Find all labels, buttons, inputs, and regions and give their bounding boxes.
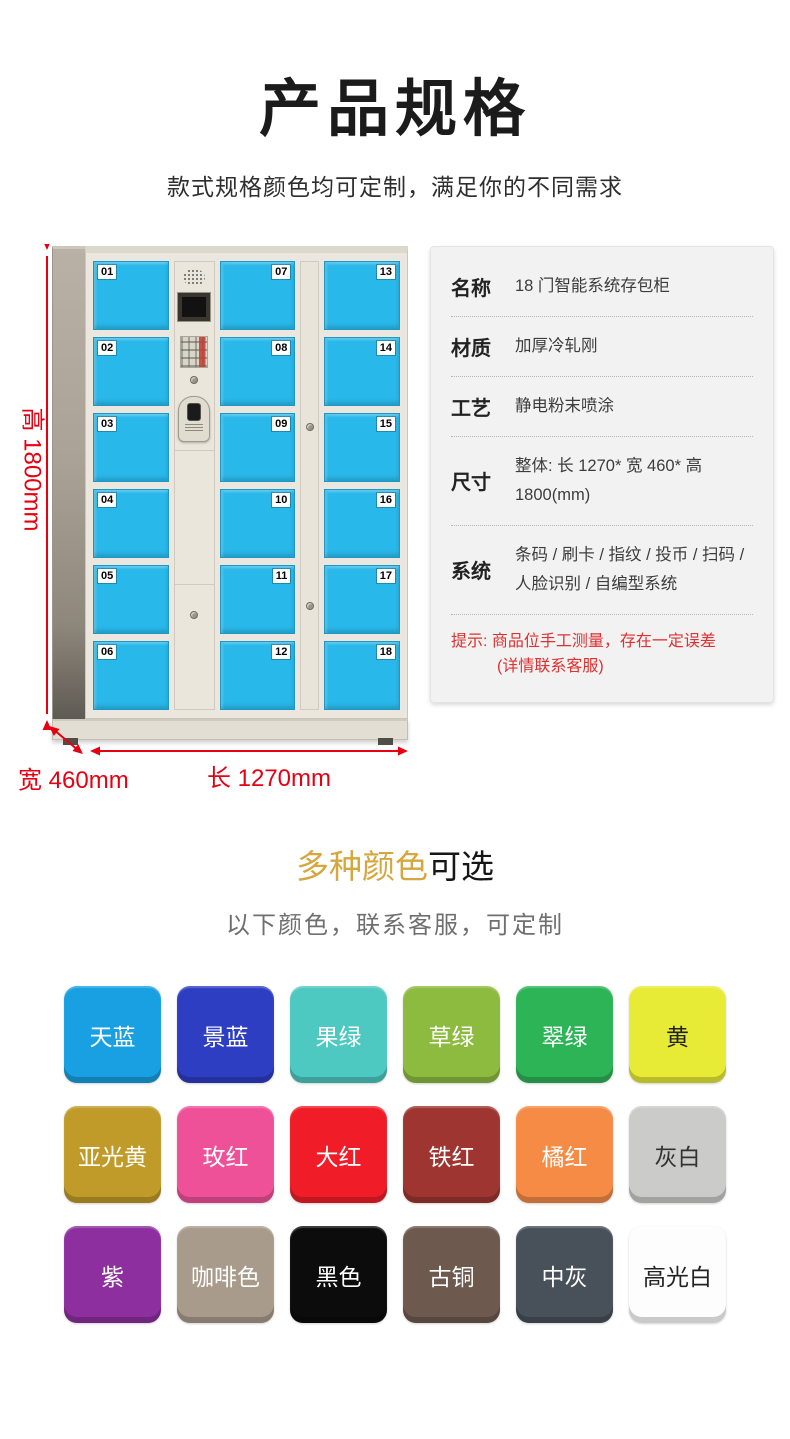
locker-door: 03 [93,413,169,482]
locker-door: 09 [220,413,296,482]
display-screen [178,293,210,321]
color-swatch-label: 果绿 [316,1018,362,1052]
dimension-length-label: 长 1270mm [184,758,354,793]
spec-note-line2: (详情联系客服) [451,654,753,680]
control-blank-panel [175,584,214,710]
locker-door: 15 [324,413,400,482]
spec-note-line1: 提示: 商品位手工测量，存在一定误差 [451,629,753,655]
spec-label: 尺寸 [451,466,503,495]
lock-icon [306,602,314,610]
locker-door: 01 [93,261,169,330]
color-swatch-black: 黑色 [290,1226,387,1323]
page-subtitle: 款式规格颜色均可定制，满足你的不同需求 [0,168,790,202]
door-number-label: 03 [98,417,116,431]
lock-icon [306,423,314,431]
spec-panel: 名称 18 门智能系统存包柜 材质 加厚冷轧刚 工艺 静电粉末喷涂 尺寸 整体:… [430,246,774,703]
color-swatch-grid: 天蓝 景蓝 果绿 草绿 翠绿 黄 亚光黄 玫红 大红 铁红 橘红 灰白 紫 咖啡… [64,986,726,1323]
scanner-text-lines [185,424,203,433]
locker-door: 04 [93,489,169,558]
cabinet-base [52,719,408,740]
control-blank-panel [175,450,214,576]
locker-door: 16 [324,489,400,558]
door-number-label: 11 [273,569,291,583]
colors-heading-highlight: 多种颜色 [296,848,428,885]
color-swatch-orange-red: 橘红 [516,1106,613,1203]
color-swatch-fruit-green: 果绿 [290,986,387,1083]
control-column [174,261,215,710]
color-swatch-label: 景蓝 [203,1018,249,1052]
color-swatch-label: 古铜 [429,1258,475,1292]
colors-subtitle: 以下颜色，联系客服，可定制 [0,905,790,940]
color-swatch-mid-gray: 中灰 [516,1226,613,1323]
locker-cabinet: 01 02 03 04 05 06 [52,246,408,740]
product-section: 01 02 03 04 05 06 [0,244,790,796]
locker-door: 18 [324,641,400,710]
color-swatch-coffee: 咖啡色 [177,1226,274,1323]
cabinet-side-panel [52,246,85,719]
color-swatch-sky-blue: 天蓝 [64,986,161,1083]
spec-note: 提示: 商品位手工测量，存在一定误差 (详情联系客服) [451,615,753,696]
color-swatch-label: 玫红 [203,1138,249,1172]
spec-label: 材质 [451,332,503,361]
color-swatch-label: 天蓝 [90,1018,136,1052]
color-swatch-purple: 紫 [64,1226,161,1323]
locker-door: 07 [220,261,296,330]
door-number-label: 16 [377,493,395,507]
divider-strip [300,261,319,710]
spec-value: 整体: 长 1270* 宽 460* 高 1800(mm) [515,452,753,510]
door-number-label: 15 [377,417,395,431]
color-swatch-label: 黑色 [316,1258,362,1292]
door-number-label: 04 [98,493,116,507]
spec-row-craft: 工艺 静电粉末喷涂 [451,377,753,437]
color-swatch-bronze: 古铜 [403,1226,500,1323]
dimension-height-label: 高 1800mm [18,405,53,535]
color-swatch-emerald: 翠绿 [516,986,613,1083]
product-spec-page: 产品规格 款式规格颜色均可定制，满足你的不同需求 01 02 03 04 05 … [0,58,790,1323]
color-swatch-gloss-white: 高光白 [629,1226,726,1323]
color-swatch-rose-red: 玫红 [177,1106,274,1203]
locker-figure: 01 02 03 04 05 06 [16,244,424,796]
door-number-label: 18 [377,645,395,659]
locker-door: 11 [220,565,296,634]
color-swatch-label: 中灰 [542,1258,588,1292]
door-number-label: 06 [98,645,116,659]
spec-label: 系统 [451,555,503,584]
door-number-label: 17 [377,569,395,583]
color-swatch-label: 亚光黄 [78,1138,147,1172]
color-swatch-label: 黄 [666,1018,689,1052]
spec-row-size: 尺寸 整体: 长 1270* 宽 460* 高 1800(mm) [451,437,753,526]
door-column-1: 01 02 03 04 05 06 [93,261,169,710]
cabinet-front: 01 02 03 04 05 06 [85,246,408,719]
door-number-label: 09 [272,417,290,431]
color-swatch-iron-red: 铁红 [403,1106,500,1203]
locker-door: 14 [324,337,400,406]
color-swatch-label: 紫 [101,1258,124,1292]
color-swatch-royal-blue: 景蓝 [177,986,274,1083]
speaker-grille-icon [183,269,205,286]
door-number-label: 07 [272,265,290,279]
locker-door: 10 [220,489,296,558]
locker-door: 05 [93,565,169,634]
color-swatch-label: 草绿 [429,1018,475,1052]
door-number-label: 08 [272,341,290,355]
spec-value: 18 门智能系统存包柜 [515,272,670,301]
locker-door: 08 [220,337,296,406]
spec-value: 静电粉末喷涂 [515,392,614,421]
color-swatch-label: 高光白 [643,1258,712,1292]
color-swatch-matte-yellow: 亚光黄 [64,1106,161,1203]
keypad-icon [180,336,208,368]
scanner-window [187,403,201,421]
fingerprint-scanner-icon [178,396,210,442]
door-number-label: 01 [98,265,116,279]
locker-door: 02 [93,337,169,406]
door-number-label: 12 [272,645,290,659]
spec-row-name: 名称 18 门智能系统存包柜 [451,257,753,317]
color-swatch-gray-white: 灰白 [629,1106,726,1203]
door-column-2: 07 08 09 10 11 12 [220,261,296,710]
door-number-label: 10 [272,493,290,507]
color-swatch-red: 大红 [290,1106,387,1203]
color-swatch-label: 铁红 [429,1138,475,1172]
spec-row-material: 材质 加厚冷轧刚 [451,317,753,377]
lock-icon [190,376,198,384]
door-number-label: 14 [377,341,395,355]
locker-door: 13 [324,261,400,330]
color-swatch-label: 大红 [316,1138,362,1172]
spec-value: 加厚冷轧刚 [515,332,598,361]
door-column-3: 13 14 15 16 17 18 [324,261,400,710]
color-swatch-label: 咖啡色 [191,1258,260,1292]
color-swatch-label: 翠绿 [542,1018,588,1052]
spec-label: 工艺 [451,392,503,421]
color-swatch-label: 灰白 [655,1138,701,1172]
door-number-label: 13 [377,265,395,279]
locker-door: 17 [324,565,400,634]
lock-icon [190,611,198,619]
colors-heading: 多种颜色可选 [0,840,790,888]
door-number-label: 05 [98,569,116,583]
locker-door: 12 [220,641,296,710]
spec-value: 条码 / 刷卡 / 指纹 / 投币 / 扫码 / 人脸识别 / 自编型系统 [515,541,753,599]
page-title: 产品规格 [0,58,790,148]
color-swatch-label: 橘红 [542,1138,588,1172]
color-swatch-yellow: 黄 [629,986,726,1083]
door-number-label: 02 [98,341,116,355]
dimension-width-label: 宽 460mm [18,760,129,795]
locker-door: 06 [93,641,169,710]
spec-label: 名称 [451,272,503,301]
colors-heading-rest: 可选 [428,848,494,885]
color-swatch-grass-green: 草绿 [403,986,500,1083]
spec-row-system: 系统 条码 / 刷卡 / 指纹 / 投币 / 扫码 / 人脸识别 / 自编型系统 [451,526,753,615]
